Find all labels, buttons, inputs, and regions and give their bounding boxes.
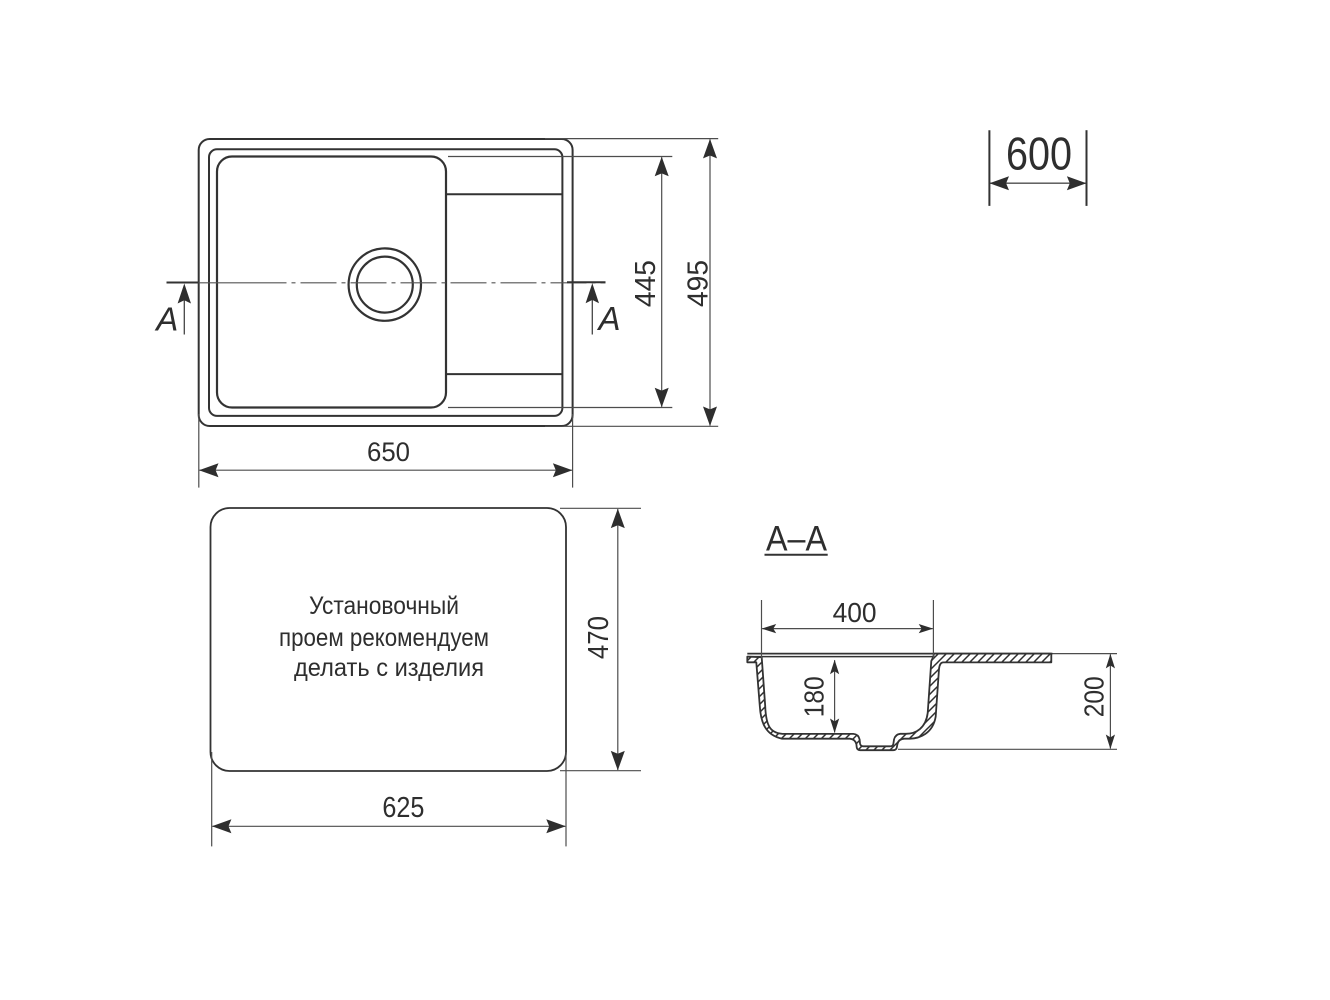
svg-text:600: 600 bbox=[1006, 128, 1072, 180]
svg-text:470: 470 bbox=[583, 616, 615, 659]
svg-text:180: 180 bbox=[799, 676, 830, 717]
svg-text:445: 445 bbox=[630, 260, 662, 307]
svg-text:A: A bbox=[596, 300, 620, 337]
svg-text:делать с изделия: делать с изделия bbox=[294, 654, 484, 682]
svg-text:650: 650 bbox=[367, 437, 410, 467]
svg-text:625: 625 bbox=[382, 792, 424, 824]
svg-text:A–A: A–A bbox=[766, 520, 828, 559]
svg-text:400: 400 bbox=[833, 597, 877, 628]
svg-text:200: 200 bbox=[1079, 676, 1110, 717]
svg-text:A: A bbox=[154, 301, 178, 338]
svg-text:495: 495 bbox=[682, 260, 714, 307]
svg-text:проем рекомендуем: проем рекомендуем bbox=[279, 624, 489, 652]
svg-text:Установочный: Установочный bbox=[309, 592, 459, 620]
